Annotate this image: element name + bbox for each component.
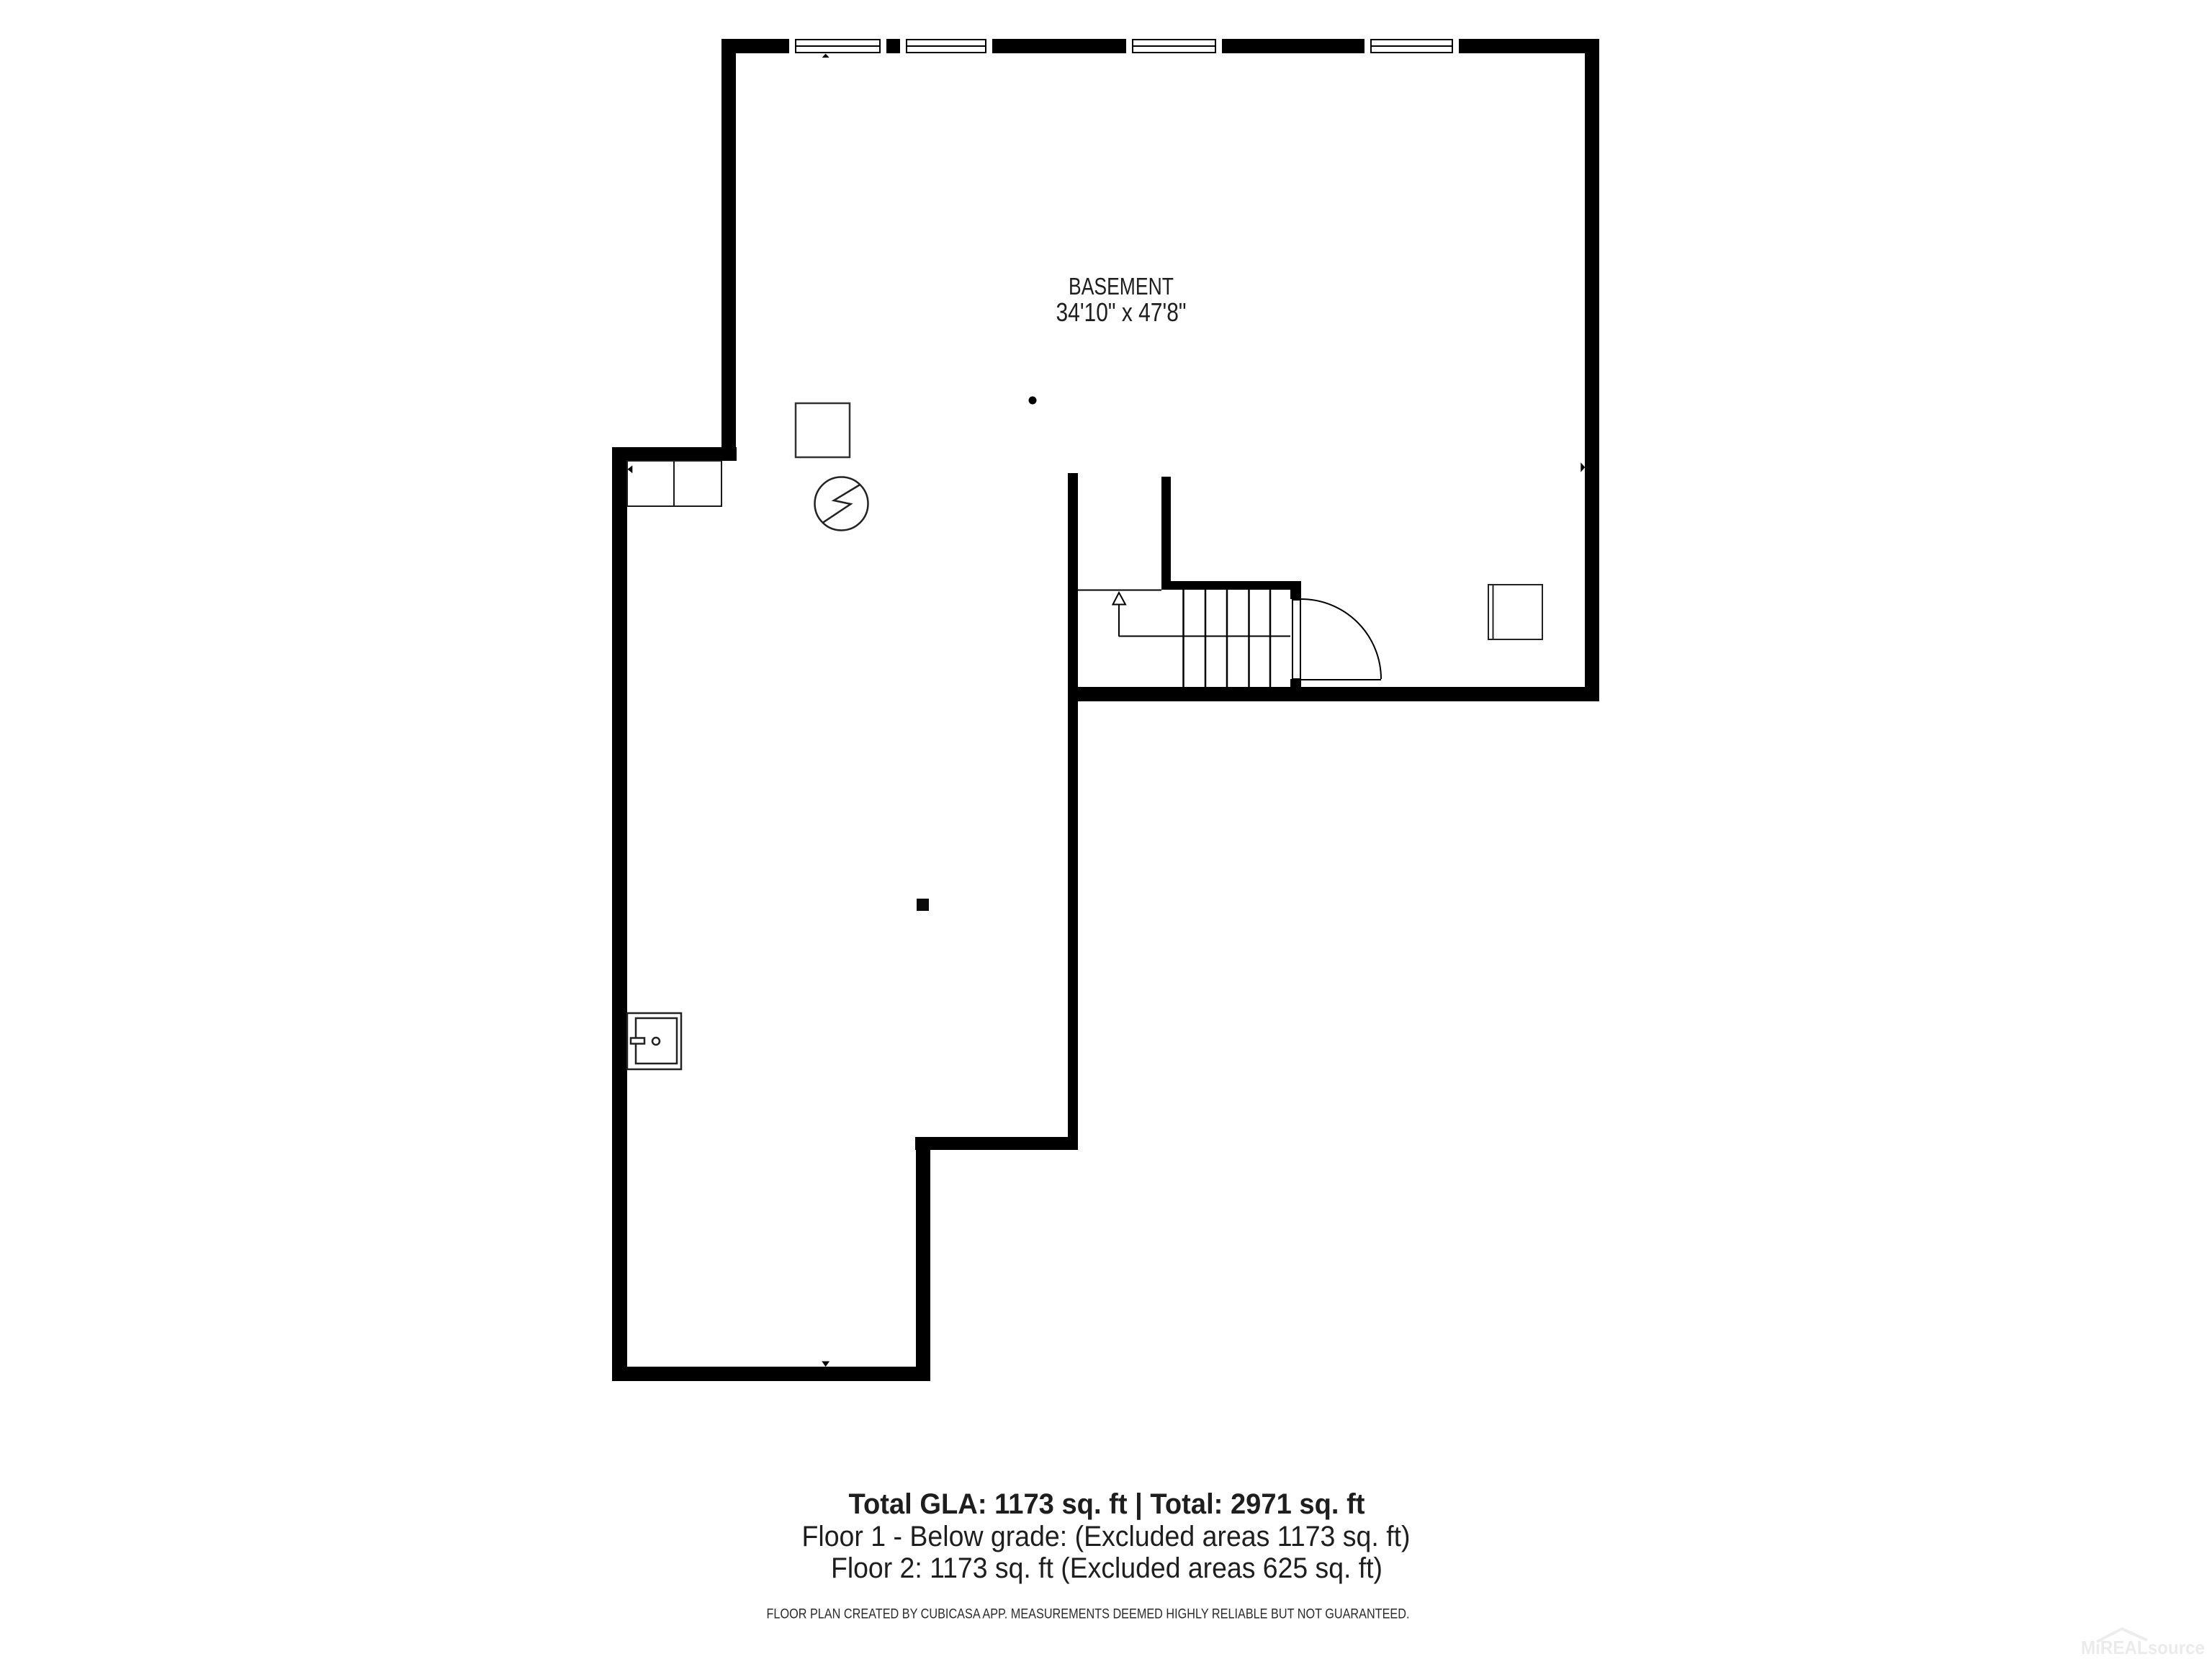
- svg-text:Floor 1 - Below grade: (Exclud: Floor 1 - Below grade: (Excluded areas 1…: [802, 1521, 1411, 1552]
- svg-text:FLOOR PLAN CREATED BY CUBICASA: FLOOR PLAN CREATED BY CUBICASA APP. MEAS…: [767, 1606, 1410, 1622]
- svg-text:MiREALsource: MiREALsource: [2081, 1637, 2205, 1658]
- svg-text:Total GLA: 1173 sq. ft | Total: Total GLA: 1173 sq. ft | Total: 2971 sq.…: [849, 1488, 1365, 1520]
- svg-text:BASEMENT: BASEMENT: [1069, 273, 1174, 300]
- svg-text:34'10" x 47'8": 34'10" x 47'8": [1056, 297, 1187, 327]
- svg-text:Floor 2: 1173 sq. ft (Excluded: Floor 2: 1173 sq. ft (Excluded areas 625…: [831, 1552, 1382, 1584]
